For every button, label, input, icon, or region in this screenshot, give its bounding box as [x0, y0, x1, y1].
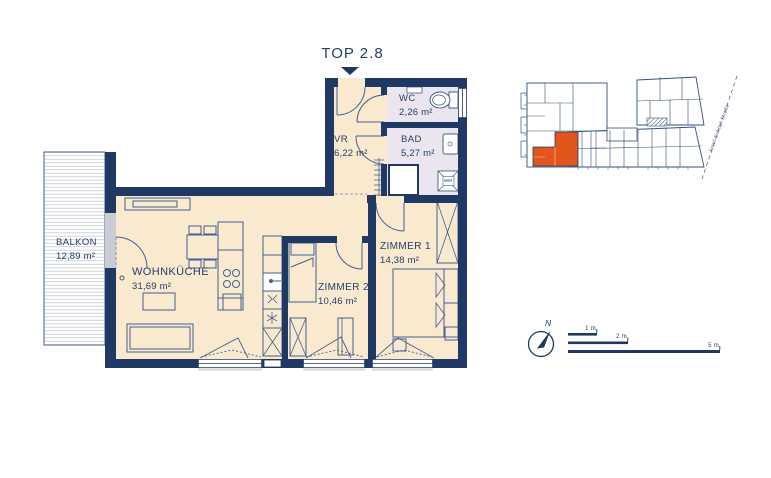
room-label-zimmer1: ZIMMER 1 14,38 m²: [380, 242, 431, 266]
room-area: 10,46 m²: [318, 297, 369, 307]
siteplan-corridor: [607, 128, 637, 141]
floor-plan-drawing: [0, 0, 771, 478]
room-area: 12,89 m²: [56, 252, 97, 262]
scale-bar-5m: [568, 350, 720, 353]
floorplan-page: TOP 2.8 BALKON 12,89 m² WOHNKÜCHE 31,69 …: [0, 0, 771, 478]
window-livingroom: [198, 359, 262, 371]
shower-icon: [389, 165, 418, 195]
siteplan-staircase: [647, 118, 667, 126]
window-zimmer1: [372, 359, 433, 371]
room-name: WOHNKÜCHE: [132, 267, 209, 278]
sink-icon: [263, 273, 282, 291]
room-name: BAD: [401, 135, 435, 145]
north-label: N: [545, 319, 551, 328]
site-plan: [521, 76, 737, 182]
room-name: BALKON: [56, 238, 97, 248]
siteplan-balcony: [521, 93, 527, 109]
room-name: ZIMMER 1: [380, 242, 431, 252]
toilet-icon: [430, 92, 458, 108]
window-zimmer2: [303, 359, 365, 371]
room-name: ZIMMER 2: [318, 283, 369, 293]
room-label-zimmer2: ZIMMER 2 10,46 m²: [318, 283, 369, 307]
room-label-wc: WC 2,26 m²: [399, 94, 433, 117]
plan-title: TOP 2.8: [310, 46, 395, 61]
window-kitchen-inset: [264, 360, 281, 367]
room-label-balkon: BALKON 12,89 m²: [56, 238, 97, 261]
compass-icon: [529, 331, 554, 357]
room-label-bad: BAD 5,27 m²: [401, 135, 435, 158]
room-area: 14,38 m²: [380, 256, 431, 266]
room-area: 5,27 m²: [401, 149, 435, 159]
room-label-wohnkueche: WOHNKÜCHE 31,69 m²: [132, 267, 209, 292]
scale-label-1m: 1 m: [585, 326, 596, 332]
window-wc: [458, 88, 467, 118]
siteplan-balcony: [521, 141, 527, 157]
entrance-marker: [341, 67, 359, 75]
room-name: VR: [334, 135, 368, 145]
scale-label-2m: 2 m: [616, 334, 627, 340]
scale-bar-1m: [568, 333, 597, 336]
room-area: 6,22 m²: [334, 149, 368, 159]
room-area: 31,69 m²: [132, 282, 209, 292]
room-area: 2,26 m²: [399, 108, 433, 118]
room-name: WC: [399, 94, 433, 104]
scale-label-5m: 5 m: [708, 343, 719, 349]
scale-bars: [568, 329, 720, 353]
bath-sink-icon: [443, 134, 458, 154]
balcony-door-threshold: [105, 213, 116, 268]
scale-bar-2m: [568, 342, 628, 345]
washing-machine-label: WM: [439, 179, 457, 184]
room-label-vr: VR 6,22 m²: [334, 135, 368, 158]
